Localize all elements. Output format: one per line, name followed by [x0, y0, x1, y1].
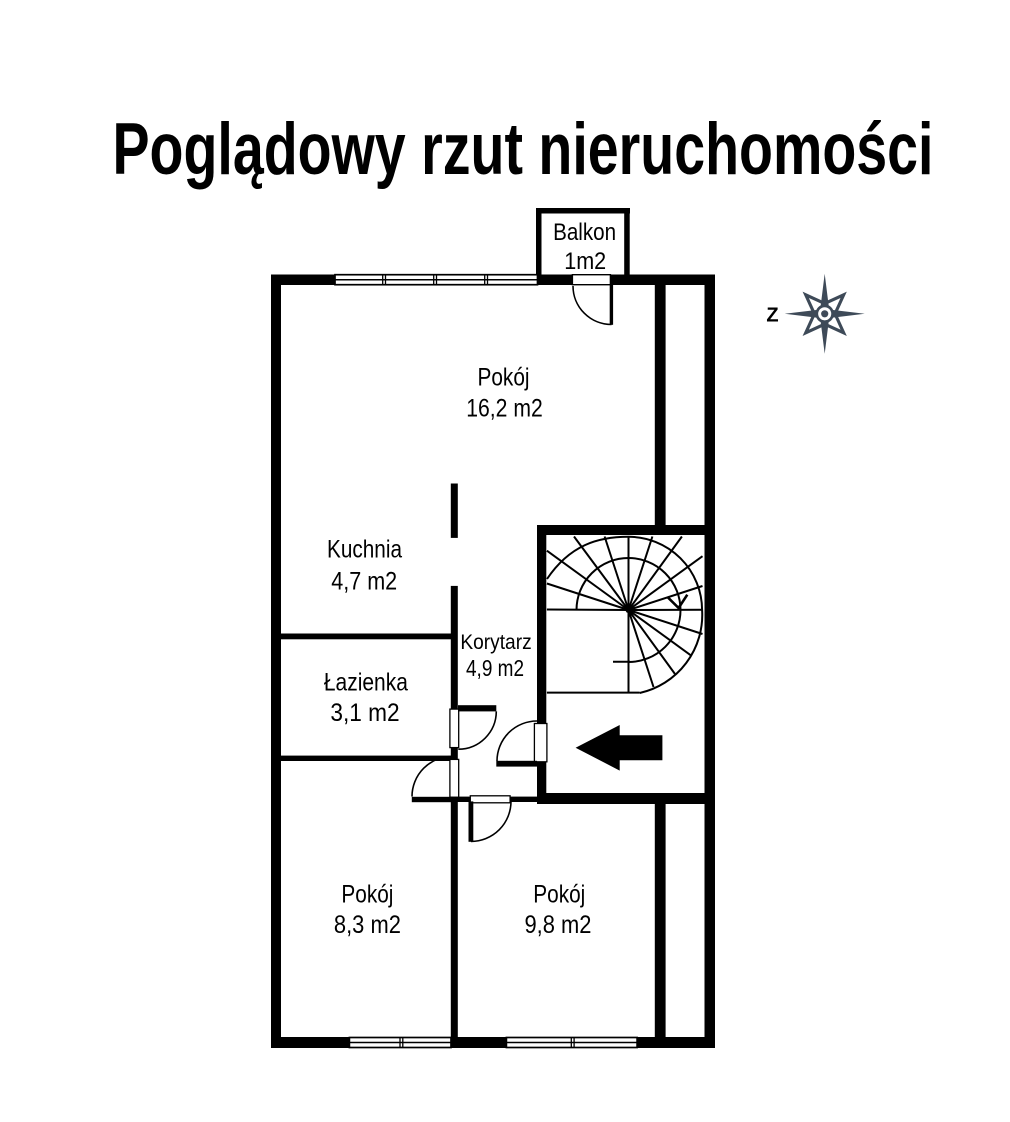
svg-text:Korytarz: Korytarz [460, 631, 531, 654]
svg-text:Kuchnia: Kuchnia [327, 536, 402, 564]
svg-text:Z: Z [766, 305, 778, 327]
svg-text:Pokój: Pokój [478, 364, 530, 392]
svg-text:Poglądowy rzut nieruchomości: Poglądowy rzut nieruchomości [113, 109, 934, 190]
svg-text:1m2: 1m2 [564, 248, 606, 275]
svg-text:8,3 m2: 8,3 m2 [334, 911, 401, 939]
svg-text:Łazienka: Łazienka [324, 669, 408, 697]
svg-text:Balkon: Balkon [553, 219, 616, 246]
svg-text:16,2 m2: 16,2 m2 [466, 394, 543, 422]
svg-text:4,7 m2: 4,7 m2 [331, 567, 397, 595]
svg-text:9,8 m2: 9,8 m2 [525, 911, 592, 939]
svg-text:3,1 m2: 3,1 m2 [330, 699, 399, 727]
svg-text:Pokój: Pokój [341, 881, 393, 909]
svg-text:4,9 m2: 4,9 m2 [466, 655, 524, 681]
svg-text:Pokój: Pokój [533, 881, 585, 909]
